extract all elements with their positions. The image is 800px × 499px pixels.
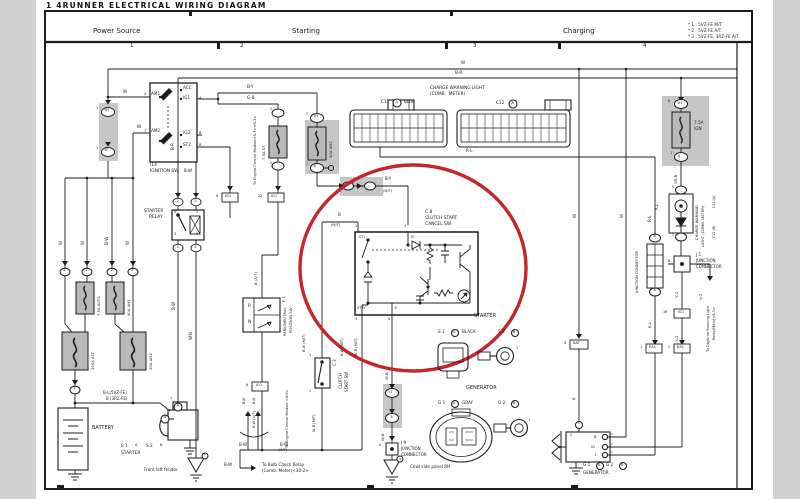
pin-ea1-2: 2 bbox=[668, 346, 670, 349]
pn-p: P bbox=[248, 305, 251, 309]
wire-b-mt: B bbox=[338, 213, 341, 217]
section-charging: Charging bbox=[563, 28, 595, 35]
relay-pin-1: 1 bbox=[196, 211, 198, 214]
pn-name-2: POSITION SW bbox=[289, 308, 293, 333]
wire-w-v1: W bbox=[573, 214, 577, 218]
conn-bat: BAT bbox=[573, 342, 580, 346]
cancel-ig: IG bbox=[411, 236, 415, 239]
gen-conn-3: 3 bbox=[578, 422, 580, 425]
wire-br-bus: B-R bbox=[455, 71, 462, 75]
ground-front-fender: Front left fender bbox=[144, 468, 178, 472]
fl2-1h: 1H bbox=[313, 115, 318, 119]
g2: G 2 bbox=[498, 401, 505, 405]
fuse-am2-mid: 30A AM2 bbox=[329, 141, 333, 158]
section-power-source: Power Source bbox=[93, 28, 140, 35]
gen-pin-5: 5 bbox=[570, 434, 572, 437]
wire-bw-mt-b: B-W (M/T) bbox=[341, 338, 345, 356]
starter-a-pin: 1 bbox=[170, 397, 172, 400]
c3-name-1: CLUTCH bbox=[339, 373, 343, 389]
cancel-sw-code: C 8 bbox=[425, 211, 432, 215]
ign-ig2: IG2 bbox=[183, 131, 190, 135]
stack-a: A bbox=[654, 289, 656, 292]
conn2-bat: 2 bbox=[74, 387, 76, 390]
s1: S 1 bbox=[438, 330, 445, 334]
col-2: 2 bbox=[240, 44, 244, 50]
ign-ig1-pin: 4 bbox=[199, 96, 201, 100]
ign-am2: AM2 bbox=[151, 129, 160, 133]
fl-1f-pin: 1 bbox=[96, 147, 98, 150]
to-drl-2: Relay(Main)<5-1> bbox=[713, 307, 717, 340]
ign-st2: ST2 bbox=[183, 143, 191, 147]
s2-b: B bbox=[513, 331, 515, 335]
s2: S 2 bbox=[498, 330, 505, 334]
c3-code: C 3 bbox=[333, 359, 337, 366]
cwl2-name-2: LIGHT (COMB. METER) bbox=[702, 206, 706, 247]
wire-wb-relay: W-B bbox=[189, 332, 193, 340]
cancel-st1: ST1 bbox=[359, 236, 365, 239]
conn2-f4: 2 bbox=[132, 269, 134, 272]
wire-yg-1: Y-G bbox=[675, 292, 679, 298]
wire-bw-ign: B-W bbox=[184, 169, 192, 173]
j5-2: CONNECTOR bbox=[696, 265, 722, 269]
wire-br-relay: B-R bbox=[171, 143, 175, 150]
wire-bw-c3: B-W bbox=[105, 237, 109, 245]
battery-label: BATTERY bbox=[92, 426, 114, 431]
wire-w-c1: W bbox=[59, 241, 63, 245]
gen-g1-a: A bbox=[598, 464, 600, 468]
conn-8: 8 bbox=[391, 416, 393, 419]
j9-code: J 9 bbox=[401, 441, 406, 445]
wire-bw-relay: B-W bbox=[172, 302, 176, 310]
st-fuse-conn-top: 2 bbox=[270, 108, 272, 111]
cancel-sw-1: CLUTCH START bbox=[425, 217, 457, 221]
j9-gnd-code: 4 bbox=[399, 458, 401, 461]
pn-code: P 1 bbox=[282, 296, 286, 302]
wire-bl-5vz: B-L(5VZ-FE) bbox=[103, 391, 127, 395]
starter-a: A bbox=[177, 404, 179, 408]
wire-bw-stub: B-W bbox=[224, 463, 232, 467]
wiring-diagram-page: 1 4RUNNER ELECTRICAL WIRING DIAGRAM bbox=[0, 0, 800, 499]
j9-a: A bbox=[379, 444, 381, 447]
wire-wb-mt-b: W-B (M/T) bbox=[355, 339, 359, 357]
wire-by-mt2: (M/T) bbox=[383, 190, 392, 194]
pn-name-1: PARK/NEUTRAL bbox=[283, 307, 287, 336]
gen-l: L bbox=[595, 453, 597, 457]
wire-yg-3: Y-G bbox=[699, 294, 703, 300]
fl-1h: 1H bbox=[104, 109, 109, 113]
c12: C12 bbox=[496, 101, 504, 105]
cwl2-pin-top: 9 bbox=[672, 186, 674, 189]
gen-g2-b: B bbox=[621, 464, 623, 468]
wire-wb-e1: W-B bbox=[385, 373, 389, 380]
conn-ig1-c: IG1 bbox=[256, 384, 262, 388]
cancel-pin-3: 3 bbox=[355, 318, 357, 322]
to-ecm-46: To Engine Control Module <4-6> bbox=[286, 389, 290, 448]
fl2-1j-pin: 1 bbox=[306, 163, 308, 166]
c3-pin-1: 1 bbox=[309, 354, 311, 358]
wire-w-v2: W bbox=[620, 214, 624, 218]
conn2-f2: 2 bbox=[86, 269, 88, 272]
wire-wb-mt-a: W-B (M/T) bbox=[313, 415, 317, 433]
to-ecm-53: To Engine Control Module<5-3><6-3> bbox=[254, 116, 258, 185]
starter-s2-b: B bbox=[160, 444, 162, 448]
wire-rl-2: R-L bbox=[648, 322, 652, 328]
generator-pic-label: GENERATOR bbox=[466, 386, 497, 391]
cancel-sw-2: CANCEL SW bbox=[425, 223, 451, 227]
gen-ig: IG bbox=[591, 445, 595, 449]
wire-bw-bus1: B-W bbox=[239, 443, 247, 447]
conn-11: 11 bbox=[388, 391, 392, 394]
ign-name: IGNITION SW bbox=[150, 170, 179, 174]
relay-c4: 2 bbox=[195, 246, 197, 249]
cwl-title-2: (COMB. METER) bbox=[430, 93, 465, 97]
wire-w-bus: W bbox=[461, 61, 465, 65]
starter-relay-1: STARTER bbox=[144, 210, 163, 214]
pin-ecm22: 22 bbox=[258, 195, 262, 198]
wire-b-mt2: (M/T) bbox=[331, 224, 340, 228]
wire-b-3rz: B (3RZ-FE) bbox=[106, 397, 127, 401]
fuse-40a-am1: 40A AM1 bbox=[127, 299, 131, 316]
relay-pin-2: 2 bbox=[196, 233, 198, 236]
c12-b: B bbox=[512, 102, 514, 106]
labels-layer: Power SourceStartingCharging* 1 : 5VZ-FE… bbox=[0, 0, 800, 499]
cwl2-pin-bot: 1 bbox=[672, 234, 674, 237]
gen-pin-1b: 1 bbox=[611, 451, 613, 454]
relay-pin-3: 3 bbox=[174, 233, 176, 236]
note-1: * 1 : 5VZ-FE M/T bbox=[688, 23, 722, 27]
ign-ig1: IG1 bbox=[183, 96, 190, 100]
gen-label: GENERATOR bbox=[583, 471, 609, 475]
ring1-pin: 1 bbox=[516, 347, 518, 350]
wire-bw-bus3: (M/T) bbox=[278, 449, 287, 453]
conn-ig1-b: IG1 bbox=[271, 195, 277, 199]
conn-ig1-d: IG1 bbox=[678, 311, 684, 315]
wire-yg-2: Y-G bbox=[675, 336, 679, 342]
to-bulb-check-2: (Comb. Meter)<30-2> bbox=[262, 469, 309, 473]
j5-code: J 5 bbox=[696, 253, 701, 257]
c11-a: A bbox=[396, 101, 398, 105]
wire-bw-mt-a: B-W (M/T) bbox=[303, 334, 307, 352]
cwl2-c11: C11 (A) bbox=[713, 196, 716, 208]
ign-ig2-pin: 6 bbox=[199, 131, 201, 135]
wire-by-mt: B-Y bbox=[385, 177, 391, 181]
c3-name-2: START SW bbox=[345, 372, 349, 392]
c3-pin-2: 2 bbox=[309, 390, 311, 394]
to-drl-1: To Daytime Running Light bbox=[707, 306, 711, 352]
wire-by: B-Y bbox=[247, 85, 253, 89]
wire-w-c2: W bbox=[81, 241, 85, 245]
wire-bw-at: B-W (A/T) bbox=[253, 411, 257, 428]
pin-16: 16 bbox=[663, 311, 667, 314]
g1: G 1 bbox=[438, 401, 445, 405]
c11-blue: BLUE bbox=[404, 100, 415, 104]
fuse-ign-2: IGN bbox=[694, 127, 702, 131]
ign-fuse-pin-bot: 1 bbox=[670, 152, 672, 155]
cwl2-name-1: CHARGE WARNING bbox=[696, 205, 700, 240]
relay-pin-5: 5 bbox=[174, 211, 176, 214]
conn2-f3: 2 bbox=[111, 269, 113, 272]
c11: C11 bbox=[381, 100, 389, 104]
junction-left-label: JUNCTION CONNECTOR bbox=[636, 251, 640, 293]
wire-w-am1: W bbox=[123, 90, 127, 94]
section-starting: Starting bbox=[292, 28, 320, 35]
fl-1f: 1F bbox=[104, 149, 108, 153]
wire-bw-ecm2: B-W bbox=[253, 398, 256, 404]
gen-pin-1a: 1 bbox=[611, 433, 613, 436]
ign-fuse-1h: 1H bbox=[677, 102, 682, 106]
wire-b-at: B (A/T) bbox=[254, 272, 258, 285]
wire-rl-v: R-L bbox=[648, 215, 652, 222]
g1-gray: GRAY bbox=[462, 401, 473, 405]
conn-ea1-b: EA1 bbox=[677, 346, 684, 350]
cancel-pin-1: 1 bbox=[355, 225, 357, 229]
gen-pin-2: 2 bbox=[611, 443, 613, 446]
col-4: 4 bbox=[643, 44, 647, 50]
wire-b-gen: B bbox=[572, 397, 576, 400]
cancel-pin-5: 5 bbox=[388, 318, 390, 322]
pin-ea1-1: 1 bbox=[640, 346, 642, 349]
conn2-f1: 2 bbox=[64, 269, 66, 272]
fl-1h-pin: 1 bbox=[96, 107, 98, 110]
gen-g1: G 1 bbox=[583, 463, 590, 467]
wire-rl-comb: R-L bbox=[655, 204, 659, 210]
ign-code: I14 bbox=[150, 164, 157, 168]
fuse-alt-s: 7.5A ALT-S bbox=[97, 296, 101, 316]
cancel-e: E bbox=[395, 307, 397, 310]
g1-a: A bbox=[453, 402, 455, 406]
conn-ea1-a: EA1 bbox=[649, 346, 656, 350]
starter-pic-label: STARTER bbox=[474, 314, 496, 319]
relay-c3: 2 bbox=[177, 246, 179, 249]
j5-1: JUNCTION bbox=[696, 259, 716, 263]
gen-b: B bbox=[594, 435, 597, 439]
starter-s2: S 2 bbox=[146, 444, 153, 448]
fl2-1h-pin: 5 bbox=[306, 113, 308, 116]
fuse-30a-am2: 30A AM2 bbox=[149, 353, 153, 370]
j5-b: B bbox=[668, 260, 670, 263]
fuse-st: 7.5A ST bbox=[262, 145, 266, 160]
s1-black: BLACK bbox=[462, 330, 476, 334]
ign-fuse-1j: 1J bbox=[677, 155, 680, 159]
j9-1: JUNCTION bbox=[401, 447, 421, 451]
relay-c2: 2 bbox=[195, 200, 197, 203]
relay-c1: 2 bbox=[177, 200, 179, 203]
ign-am1: AM1 bbox=[151, 92, 160, 96]
wire-wb-e2: W-B bbox=[381, 434, 385, 441]
starter-s1-a: A bbox=[135, 444, 137, 448]
ring2-pin: 1 bbox=[528, 419, 530, 422]
wire-grb: GR-B bbox=[674, 175, 678, 184]
pin-ecm6: 6 bbox=[216, 195, 218, 198]
gen-g2: G 2 bbox=[606, 463, 613, 467]
ign-am1-pin: 2 bbox=[144, 92, 146, 96]
to-bulb-check-1: To Bulb Check Relay bbox=[262, 463, 304, 467]
starter-b: B bbox=[164, 416, 166, 420]
cancel-stry: STRY bbox=[357, 307, 365, 310]
note-2: * 2 : 5VZ-FE A/T bbox=[688, 29, 721, 33]
ign-acc: ACC bbox=[183, 86, 192, 90]
col-1: 1 bbox=[130, 44, 134, 50]
fuse-100a-alt: 100A ALT bbox=[91, 352, 95, 370]
wire-w-am2: W bbox=[137, 125, 141, 129]
stack-b: B bbox=[654, 235, 656, 238]
ground-cowl: Cowl side panel RH bbox=[410, 465, 450, 469]
pin-8: 8 bbox=[246, 384, 248, 387]
fuse-ign-1: 7.5A bbox=[694, 121, 704, 125]
ground-b-code: B bbox=[204, 453, 206, 456]
ign-st2-pin: 8 bbox=[199, 143, 201, 147]
starter-s1: S 1 bbox=[121, 444, 128, 448]
pin-bat-4: 4 bbox=[564, 342, 566, 345]
wire-gb: G-B bbox=[247, 96, 254, 100]
cwl-title-1: CHARGE WARNING LIGHT bbox=[430, 87, 485, 91]
ign-fuse-pin-top: 8 bbox=[668, 100, 670, 103]
pn-n: N bbox=[248, 321, 251, 325]
starter-relay-2: RELAY bbox=[149, 216, 163, 220]
starter-label: STARTER bbox=[121, 452, 140, 456]
g2-b: B bbox=[513, 402, 515, 406]
j9-2: CONNECTOR bbox=[401, 453, 427, 457]
wire-w-c4: W bbox=[126, 241, 130, 245]
st-fuse-conn-bot: 2 bbox=[270, 162, 272, 165]
cwl2-c12: C12 (B) bbox=[713, 226, 716, 238]
fl2-1j: 1J bbox=[313, 165, 316, 169]
wire-rl-bus: R-L bbox=[466, 149, 473, 153]
cancel-pin-7: 7 bbox=[404, 225, 406, 229]
wire-bw-ecm1: B-W bbox=[243, 398, 246, 404]
note-3: * 3 : 5VZ-FE, 3RZ-FE A/T bbox=[688, 35, 739, 39]
s1-a: A bbox=[453, 331, 455, 335]
ign-am2-pin: 7 bbox=[144, 129, 146, 133]
col-3: 3 bbox=[473, 44, 477, 50]
conn-ig1-a: IG1 bbox=[225, 195, 231, 199]
